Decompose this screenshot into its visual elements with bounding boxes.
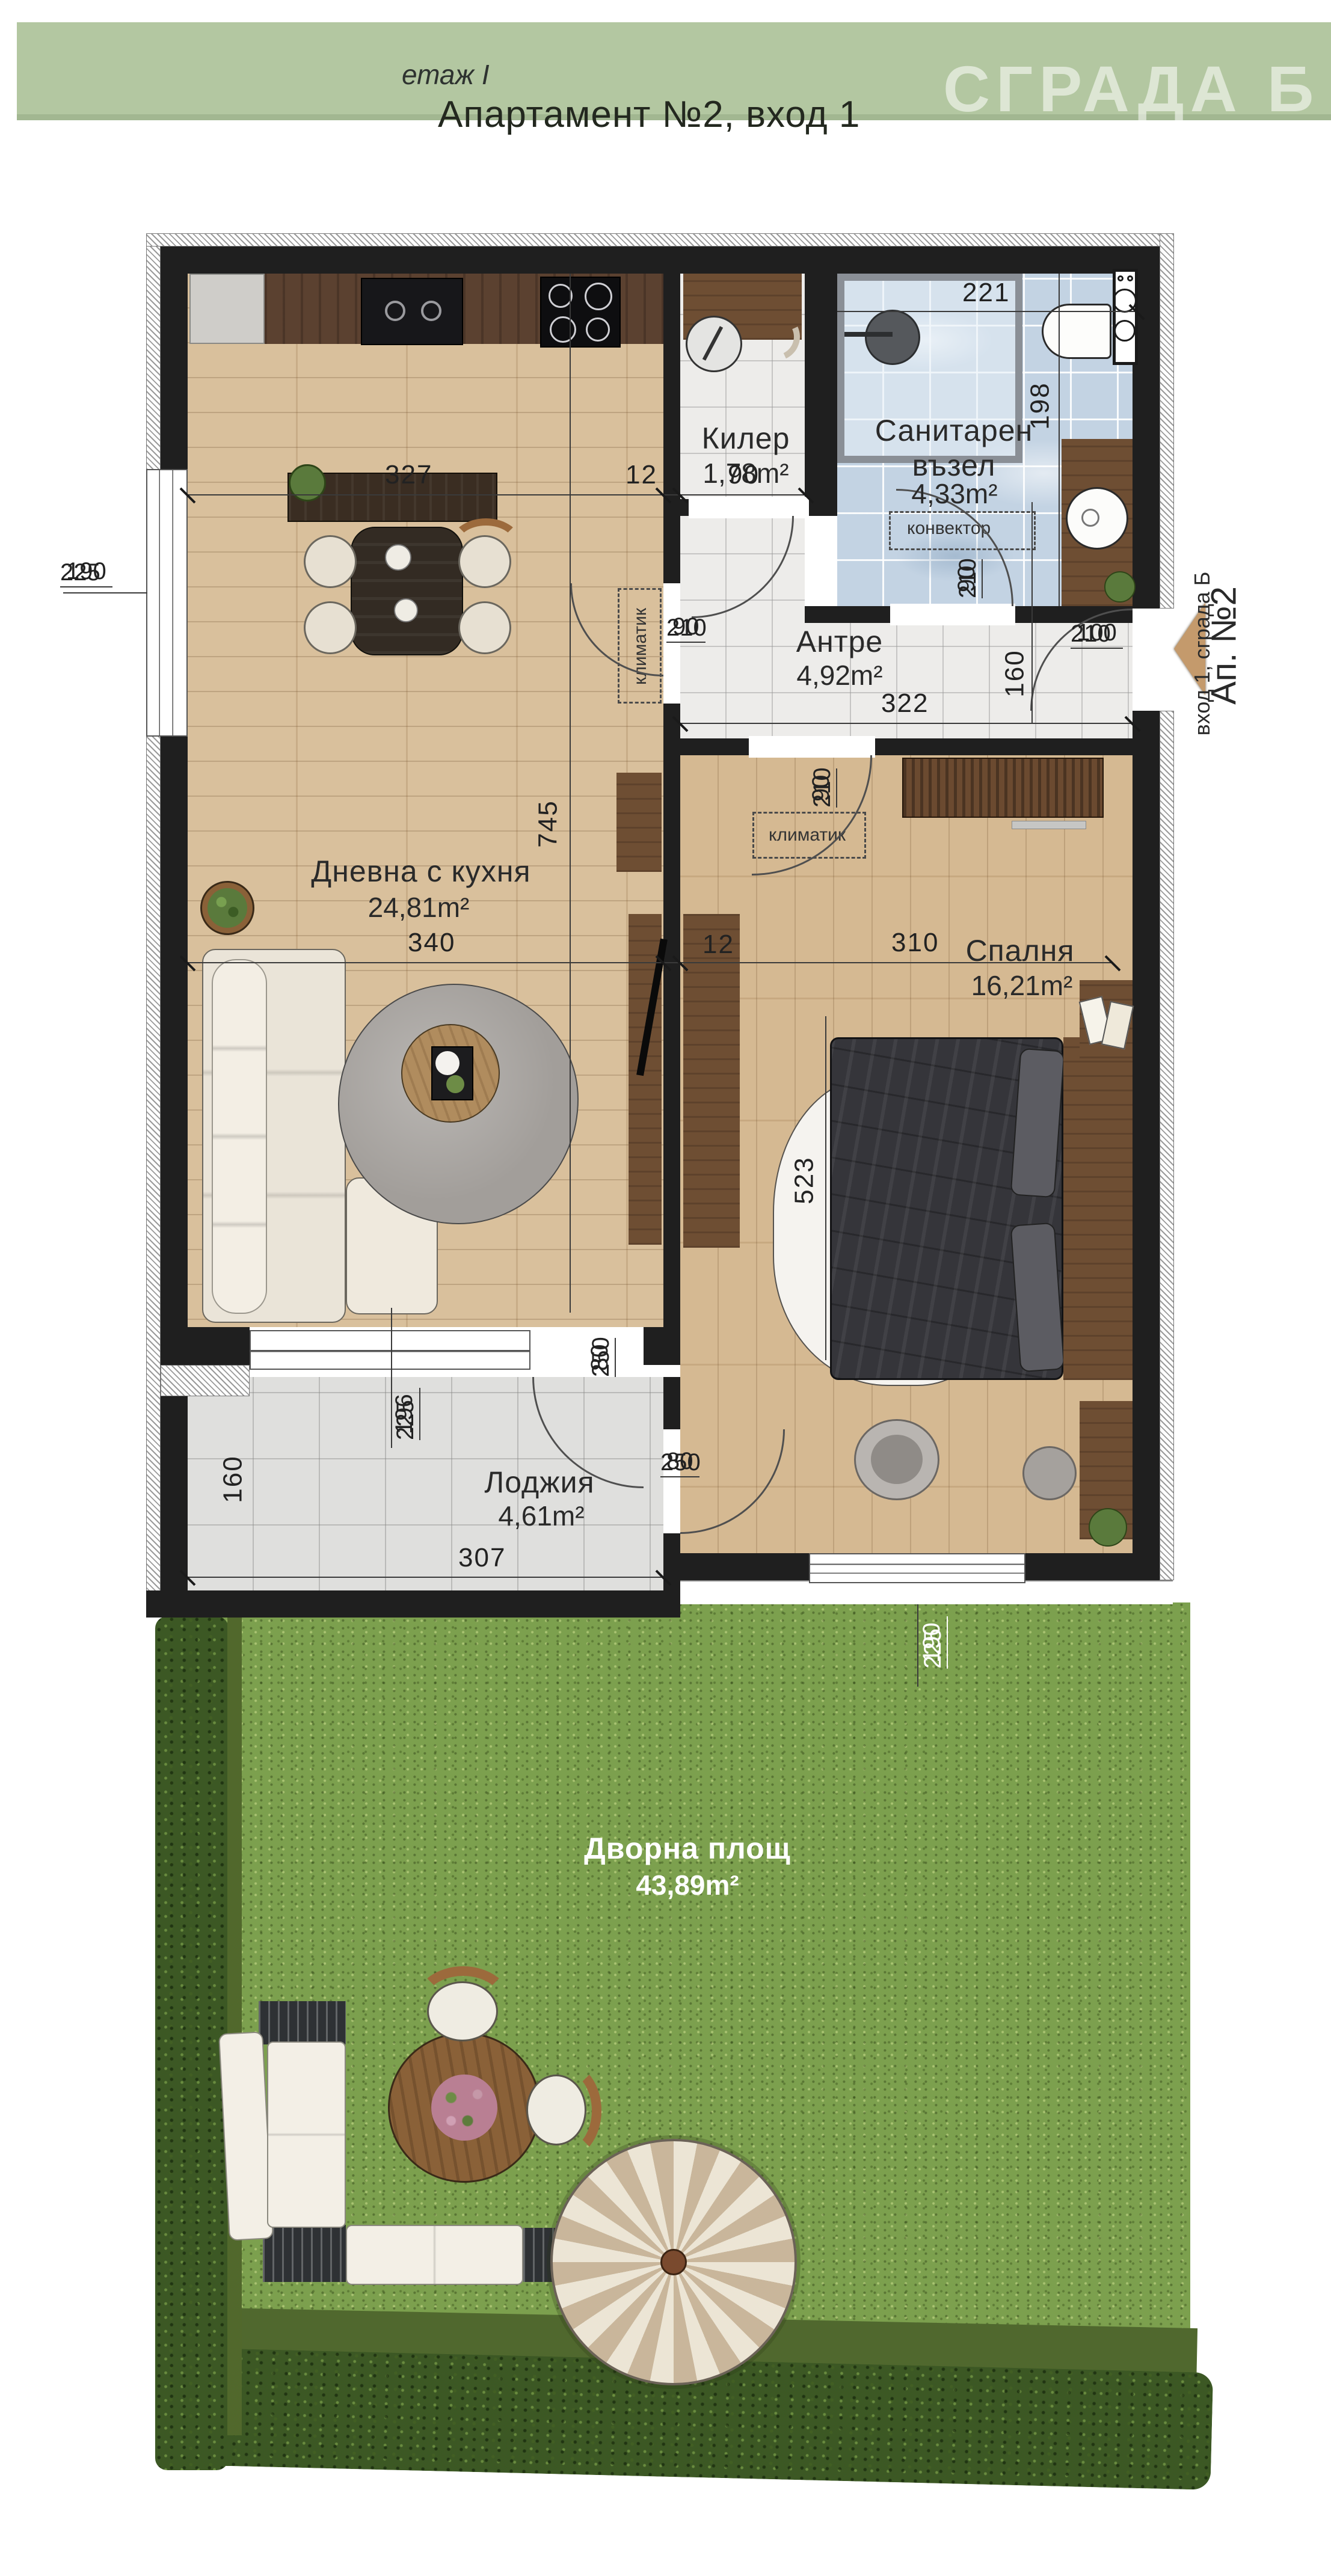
wall-bed-bottom-r xyxy=(1025,1553,1133,1580)
dim-line-bed-h xyxy=(825,1016,826,1360)
floor-label: етаж I xyxy=(402,58,534,91)
page-title: Апартамент №2, вход 1 xyxy=(438,93,979,136)
loggia-area: 4,61m² xyxy=(451,1500,632,1532)
garden-chair-right-back xyxy=(529,2062,601,2159)
wall-bed-bottom-l xyxy=(680,1553,809,1580)
washer-knob-1 xyxy=(1117,275,1124,281)
header-banner: етаж I Апартамент №2, вход 1 СГРАДА Б xyxy=(17,22,1331,120)
dim-line-bath-w xyxy=(837,311,1137,312)
dim-line-living-win xyxy=(63,592,147,593)
bedroom-area: 16,21m² xyxy=(932,969,1112,1002)
yard-area: 43,89m² xyxy=(597,1869,778,1901)
dim-line-antre-w xyxy=(680,723,1133,724)
insulation-right-b xyxy=(1160,711,1174,1580)
living-area: 24,81m² xyxy=(328,891,509,924)
armchair-seat xyxy=(871,1435,923,1484)
island-plant xyxy=(289,464,326,501)
chair-5-back xyxy=(450,518,522,572)
dim-line-living-h xyxy=(570,274,571,1313)
dim-loggia-h: 160 xyxy=(218,1455,248,1503)
antre-area: 4,92m² xyxy=(749,659,930,692)
insulation-right-a xyxy=(1160,233,1174,609)
wardrobe xyxy=(902,758,1104,818)
bed-headboard-strip xyxy=(1063,1037,1133,1380)
fridge xyxy=(189,274,265,344)
table-plate-2 xyxy=(394,598,418,622)
dim-line-top xyxy=(188,494,806,495)
sill-bedroom xyxy=(680,1580,1173,1604)
hedge-left xyxy=(155,1616,229,2470)
dining-table xyxy=(351,527,463,655)
dim-bath-h: 198 xyxy=(1025,382,1056,429)
wall-top xyxy=(161,247,1160,274)
sink-bowl-right xyxy=(421,301,441,321)
dim-top-kiler: 90 xyxy=(728,460,760,490)
shower-head-icon xyxy=(865,310,920,365)
bath-plant xyxy=(1104,571,1136,603)
bath-area: 4,33m² xyxy=(864,477,1045,510)
bedroom-door-opening xyxy=(749,736,875,758)
burner-2 xyxy=(585,283,612,310)
living-label: Дневна с кухня xyxy=(301,854,541,889)
dim-line-antre-h xyxy=(1031,502,1033,723)
dim-loggia-w: 307 xyxy=(458,1543,506,1573)
dim-top-kitchen: 327 xyxy=(385,460,432,490)
kitchen-sink xyxy=(361,278,463,345)
insulation-top xyxy=(146,233,1174,247)
garden-sofa-seats-left xyxy=(267,2041,346,2228)
washer-drum-2 xyxy=(1114,320,1136,342)
dim-line-loggia-w xyxy=(188,1577,663,1578)
window-bedroom xyxy=(809,1553,1025,1583)
chair-2 xyxy=(304,601,357,654)
dim-top-wall: 12 xyxy=(626,460,657,490)
burner-1 xyxy=(549,284,573,308)
dim-mid-bedroom: 310 xyxy=(891,928,939,958)
kiler-label: Килер xyxy=(656,421,836,456)
bedroom-plant xyxy=(1089,1508,1127,1547)
burner-4 xyxy=(586,317,610,342)
wall-right-b xyxy=(1133,711,1160,1580)
loggia-label: Лоджия xyxy=(449,1465,630,1500)
kiler-door-opening xyxy=(689,497,809,518)
hedge-left-shadow xyxy=(227,1618,242,2435)
shower-arm xyxy=(844,332,893,337)
band-wall-right xyxy=(644,1327,680,1365)
yard-label: Дворна площ xyxy=(567,1831,808,1866)
washer-knob-2 xyxy=(1127,275,1133,281)
dim-bed-h: 523 xyxy=(790,1156,820,1204)
entry-opening xyxy=(1133,609,1174,711)
band-insulation xyxy=(161,1365,250,1396)
table-plate-1 xyxy=(385,544,411,571)
washer-column xyxy=(1113,269,1138,365)
dim-mid-living: 340 xyxy=(408,928,455,958)
bedroom-pouf xyxy=(1022,1446,1077,1500)
dim-line-bath-h xyxy=(1059,274,1060,606)
tray-plant xyxy=(446,1075,464,1093)
plant-living xyxy=(207,888,247,928)
dim-living-h: 745 xyxy=(533,800,564,847)
garden-bench-top xyxy=(259,2001,346,2044)
tray-vase xyxy=(435,1051,460,1075)
garden-chair-top-back xyxy=(415,1966,511,2038)
wall-left-b xyxy=(161,737,188,1618)
window-living xyxy=(146,469,188,737)
wall-left-a xyxy=(161,247,188,469)
insulation-left xyxy=(146,233,161,1618)
band-wall-left xyxy=(161,1327,250,1365)
dim-bath-w: 221 xyxy=(962,278,1010,308)
garden-table-flowers xyxy=(431,2075,497,2141)
chair-1 xyxy=(304,535,357,588)
wall-h3-bedroom xyxy=(680,738,1133,755)
chair-4 xyxy=(458,601,511,654)
sink-bowl-left xyxy=(385,301,405,321)
sofa-back-cushions xyxy=(212,959,267,1314)
dim-mid-wall: 12 xyxy=(702,930,734,960)
wall-loggia-bottom xyxy=(146,1590,680,1618)
hall-cabinet xyxy=(616,773,662,872)
wardrobe-shelf xyxy=(1012,821,1086,829)
basin-drain xyxy=(1081,509,1099,527)
building-watermark: СГРАДА Б xyxy=(943,51,1331,126)
bath-door-opening xyxy=(890,604,1015,625)
burner-3 xyxy=(550,316,576,343)
dim-antre-h: 160 xyxy=(1000,649,1030,697)
window-loggia-slider xyxy=(250,1330,530,1370)
entry-building-label: вход 1, сграда Б xyxy=(1190,554,1215,753)
dim-antre-w: 322 xyxy=(881,688,929,719)
antre-label: Антре xyxy=(749,624,930,659)
wall-v1-c xyxy=(663,1377,680,1429)
garden-umbrella-pole xyxy=(660,2249,687,2275)
bedroom-desk-strip xyxy=(683,914,740,1248)
floor-plan-sheet: етаж I Апартамент №2, вход 1 СГРАДА Б Дв… xyxy=(0,0,1331,2576)
dim-line-mid xyxy=(188,962,1113,963)
wall-v1-b xyxy=(663,704,680,1327)
garden-sofa-seats-bottom xyxy=(346,2225,523,2285)
garden-bench-bottom xyxy=(263,2225,346,2282)
